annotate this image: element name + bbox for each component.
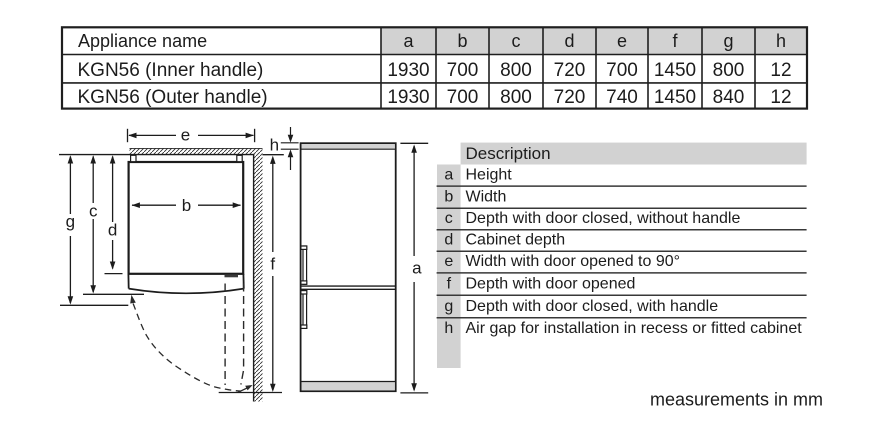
- svg-text:Cabinet depth: Cabinet depth: [466, 232, 566, 249]
- svg-text:Width: Width: [466, 189, 507, 206]
- svg-text:a: a: [403, 31, 414, 51]
- svg-text:1930: 1930: [387, 60, 429, 81]
- svg-text:1450: 1450: [654, 60, 696, 81]
- svg-text:g: g: [66, 212, 75, 231]
- svg-text:d: d: [444, 232, 453, 249]
- svg-text:Description: Description: [466, 144, 551, 163]
- svg-text:measurements in mm: measurements in mm: [650, 389, 823, 409]
- svg-text:12: 12: [770, 60, 791, 81]
- svg-text:g: g: [444, 298, 453, 315]
- svg-text:e: e: [181, 126, 190, 145]
- svg-text:f: f: [270, 254, 275, 273]
- svg-text:g: g: [723, 31, 733, 51]
- svg-text:720: 720: [554, 87, 586, 108]
- svg-text:800: 800: [713, 60, 745, 81]
- svg-text:720: 720: [554, 60, 586, 81]
- svg-text:Depth with door closed, withou: Depth with door closed, without handle: [466, 210, 741, 227]
- svg-text:800: 800: [500, 60, 532, 81]
- svg-text:12: 12: [770, 87, 791, 108]
- svg-text:Height: Height: [466, 166, 513, 183]
- svg-text:d: d: [108, 220, 117, 239]
- svg-text:d: d: [564, 31, 574, 51]
- svg-text:KGN56 (Outer handle): KGN56 (Outer handle): [78, 87, 268, 108]
- svg-text:c: c: [445, 210, 453, 227]
- svg-text:c: c: [512, 31, 521, 51]
- svg-text:b: b: [444, 189, 453, 206]
- svg-text:800: 800: [500, 87, 532, 108]
- svg-text:700: 700: [447, 60, 479, 81]
- svg-text:f: f: [447, 276, 452, 293]
- svg-text:c: c: [89, 201, 98, 220]
- svg-text:Width with door opened to 90°: Width with door opened to 90°: [466, 253, 681, 270]
- svg-text:h: h: [776, 31, 786, 51]
- svg-text:h: h: [270, 135, 279, 154]
- svg-text:Air gap for installation in re: Air gap for installation in recess or fi…: [466, 320, 803, 337]
- svg-text:KGN56 (Inner handle): KGN56 (Inner handle): [78, 60, 264, 81]
- svg-text:Appliance name: Appliance name: [78, 31, 207, 51]
- svg-text:e: e: [444, 253, 453, 270]
- svg-text:700: 700: [447, 87, 479, 108]
- svg-text:h: h: [444, 320, 453, 337]
- svg-text:740: 740: [606, 87, 638, 108]
- svg-text:1930: 1930: [387, 87, 429, 108]
- svg-text:Depth with door closed, with h: Depth with door closed, with handle: [466, 298, 719, 315]
- svg-text:1450: 1450: [654, 87, 696, 108]
- svg-text:b: b: [182, 196, 191, 215]
- svg-text:700: 700: [606, 60, 638, 81]
- svg-text:a: a: [444, 166, 453, 183]
- svg-text:a: a: [412, 258, 422, 277]
- svg-text:Depth with door opened: Depth with door opened: [466, 276, 636, 293]
- svg-text:e: e: [617, 31, 627, 51]
- svg-text:840: 840: [713, 87, 745, 108]
- svg-text:b: b: [457, 31, 467, 51]
